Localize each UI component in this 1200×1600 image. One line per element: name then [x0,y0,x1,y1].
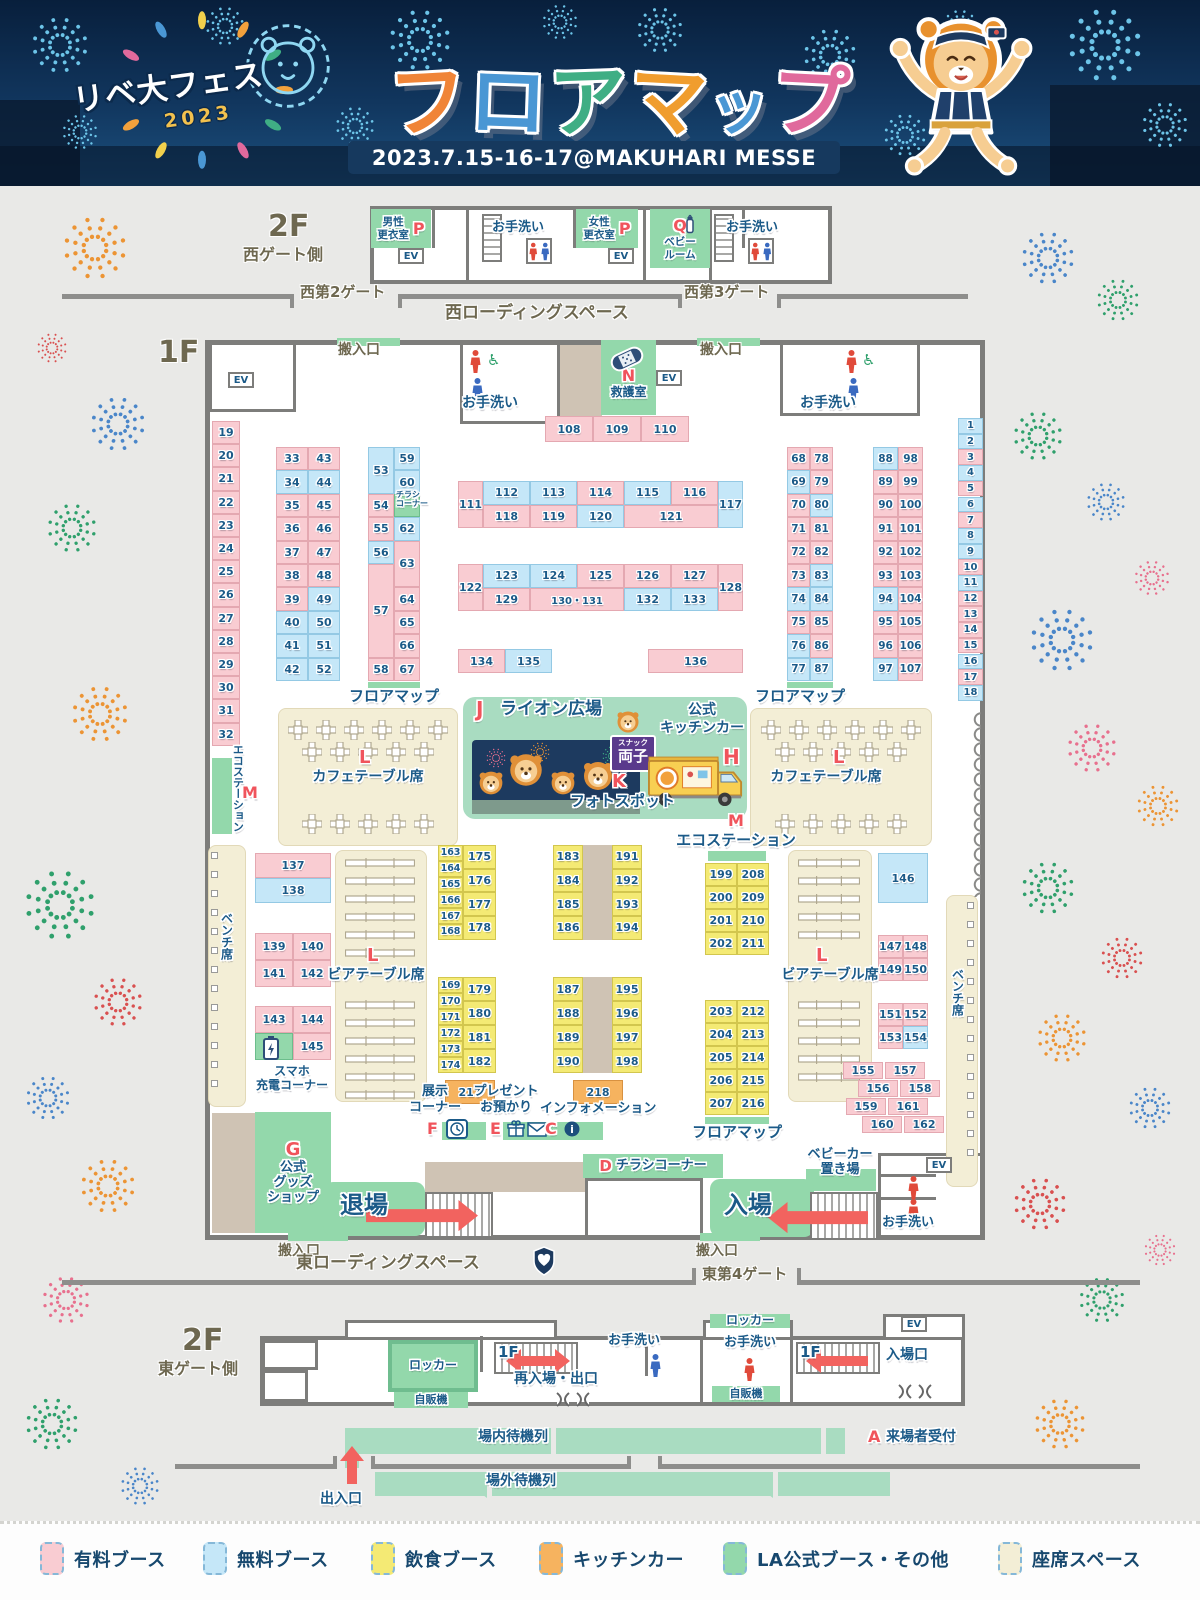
booth-number: 53 [373,464,388,477]
booth-number: 215 [742,1074,765,1087]
booth-38: 38 [276,564,308,587]
booth-216: 216 [737,1092,769,1115]
structure-gate [777,294,781,308]
booth-number: 100 [900,499,922,511]
booth-number: 171 [441,1012,461,1023]
booth-number: 87 [814,663,829,675]
booth-number: 13 [964,609,978,620]
booth-number: 36 [284,522,299,535]
bandage-icon [607,344,647,374]
booth-9: 9 [958,544,983,560]
bench-seat-icon [211,1023,218,1030]
structure-gate [678,294,682,308]
booth-209: 209 [737,886,769,909]
title-character: ア [548,63,629,144]
map-label: L [816,946,827,966]
booth-number: 11 [964,577,978,588]
booth-number: 12 [964,593,978,604]
booth-6: 6 [958,497,983,513]
firework-decoration [118,1464,162,1508]
booth-number: 125 [589,569,612,582]
booth-36: 36 [276,517,308,540]
booth-133: 133 [671,588,718,612]
booth-186: 186 [553,916,583,940]
booth-number: 92 [878,546,893,558]
booth-88: 88 [873,447,898,470]
structure-wallthin [878,1174,936,1177]
booth-number: 31 [218,704,233,717]
booth-211: 211 [737,932,769,955]
legend-item-1: 有料ブース [40,1542,166,1575]
booth-20: 20 [212,444,240,467]
booth-number: 213 [742,1028,765,1041]
booth-number: 124 [542,569,565,582]
booth-215: 215 [737,1069,769,1092]
bench-seat-icon [967,921,974,928]
beer-table-icon [798,858,860,868]
booth-number: 189 [557,1031,580,1044]
booth-69: 69 [787,470,810,493]
booth-number: 56 [373,546,388,559]
structure-wallthin [432,206,435,248]
wheelchair-icon: ♿ [487,351,500,369]
booth-197: 197 [612,1025,642,1049]
structure-gate [398,294,682,299]
booth-number: 197 [616,1031,639,1044]
booth-number: 200 [710,891,733,904]
baby-room-text: ベビー ルーム [664,236,696,260]
vending-machine-west: 自販機 [394,1392,468,1408]
booth-number: 111 [459,498,482,511]
booth-34: 34 [276,470,308,493]
direction-arrow-icon [340,1446,364,1484]
map-label: お手洗い [882,1216,934,1231]
map-label: ベンチ席 [219,912,232,960]
booth-97: 97 [873,658,898,681]
structure-tan [212,1113,255,1233]
booth-170: 170 [438,993,463,1009]
booth-173: 173 [438,1041,463,1057]
booth-128: 128 [718,564,743,611]
booth-number: 75 [791,616,806,628]
elevator-label: EV [608,248,634,264]
booth-number: 107 [900,663,922,675]
booth-171: 171 [438,1009,463,1025]
booth-number: 130・131 [551,592,603,607]
booth-143: 143 [255,1006,293,1033]
firework-decoration [1018,228,1078,288]
booth-number: 51 [316,639,331,652]
booth-number: 141 [263,967,286,980]
booth-162: 162 [904,1116,944,1133]
booth-number: 158 [909,1082,932,1095]
booth-number: 43 [316,452,331,465]
map-label: C [545,1120,557,1138]
booth-number: 26 [218,588,233,601]
booth-91: 91 [873,517,898,540]
booth-number: 202 [710,937,733,950]
cafe-table-icon [761,720,781,740]
map-label: 再入場・出口 [514,1372,598,1388]
booth-number: 65 [399,616,414,629]
first-aid-room-text: 救護室 [610,386,646,400]
booth-70: 70 [787,494,810,517]
map-label: チラシ コーナー [396,491,428,509]
booth-number: 144 [301,1013,324,1026]
beer-table-icon [798,1018,860,1028]
booth-159: 159 [846,1098,886,1115]
firework-decoration [1034,1010,1090,1066]
booth-2: 2 [958,434,983,450]
booth-number: 175 [468,850,491,863]
booth-number: 132 [636,593,659,606]
booth-number: 161 [897,1100,920,1113]
bench-seat-icon [967,1016,974,1023]
map-label: 2F [268,210,309,244]
legend-swatch [539,1542,563,1575]
structure-tan [425,1162,585,1192]
booth-number: 78 [814,453,829,465]
booth-number: 194 [616,921,639,934]
booth-103: 103 [898,564,923,587]
booth-163: 163 [438,845,463,861]
booth-number: 121 [660,510,683,523]
booth-number: 86 [814,640,829,652]
beer-table-icon [798,1036,860,1046]
booth-51: 51 [308,634,340,657]
baby-bottle-icon [684,212,696,234]
booth-number: 177 [468,898,491,911]
booth-48: 48 [308,564,340,587]
structure-gate [662,1464,1140,1469]
cafe-table-icon [775,742,795,762]
cafe-table-icon [330,814,350,834]
map-label: A [868,1428,880,1446]
booth-number: 147 [879,940,902,953]
booth-123: 123 [483,564,530,588]
map-label: 場外待機列 [486,1474,556,1490]
booth-number: 42 [284,663,299,676]
queue-arrow-gap [773,1472,778,1498]
booth-17: 17 [958,669,983,685]
booth-49: 49 [308,587,340,610]
beer-table-icon [345,930,415,940]
bench-seat-icon [211,928,218,935]
booth-number: 160 [871,1118,894,1131]
booth-number: 94 [878,593,893,605]
booth-106: 106 [898,634,923,657]
structure-wall [205,1235,288,1240]
booth-number: 38 [284,569,299,582]
booth-number: 24 [218,542,233,555]
title-character: プ [769,62,851,144]
shutter-wall-decoration [966,712,981,897]
bench-seat-icon [211,1004,218,1011]
booth-139: 139 [255,933,293,960]
female-restroom-icon [470,350,481,373]
booth-number: 119 [542,510,565,523]
cafe-table-icon [901,720,921,740]
booth-136: 136 [648,649,743,673]
booth-number: 190 [557,1055,580,1068]
map-label: お手洗い [708,1336,792,1351]
booth-number: 84 [814,593,829,605]
booth-59: 59 [394,447,420,470]
female-restroom-icon [846,350,857,373]
bench-seat-icon [211,947,218,954]
booth-number: 8 [967,530,974,541]
booth-number: 186 [557,921,580,934]
booth-195: 195 [612,977,642,1001]
booth-number: 127 [683,569,706,582]
booth-number: 187 [557,983,580,996]
booth-190: 190 [553,1049,583,1073]
booth-210: 210 [737,909,769,932]
map-label: エコステーション [666,832,806,849]
booth-number: 207 [710,1097,733,1110]
male-icon [541,242,549,260]
booth-number: 23 [218,519,233,532]
map-label: ビアテーブル席 [318,968,434,984]
firework-decoration [1018,858,1078,918]
booth-125: 125 [577,564,624,588]
structure-gate [797,1280,1140,1285]
beer-table-icon [345,1072,415,1082]
booth-number: 48 [316,569,331,582]
elevator-label: EV [398,248,424,264]
locker-west: ロッカー [388,1340,478,1392]
booth-number: 198 [616,1055,639,1068]
vending-machine-west-text: 自販機 [415,1394,448,1407]
booth-number: 89 [878,476,893,488]
beer-table-icon [798,876,860,886]
booth-number: 22 [218,496,233,509]
map-label: 退場 [340,1192,388,1219]
booth-84: 84 [810,587,833,610]
structure-gate [371,1456,375,1469]
elevator-label: EV [901,1316,927,1332]
booth-71: 71 [787,517,810,540]
vending-machine-east: 自販機 [712,1386,780,1402]
booth-number: 188 [557,1007,580,1020]
firework-decoration [22,1394,82,1454]
wheelchair-icon: ♿ [862,351,875,369]
legend-label: 飲食ブース [405,1546,497,1572]
eco-station-strip-right [708,851,766,861]
map-label: 1F [498,1344,519,1361]
map-label: お手洗い [492,221,544,236]
bench-seat-icon [967,978,974,985]
map-label: スマホ 充電コーナー [240,1064,344,1093]
structure-gate [375,1464,627,1469]
booth-98: 98 [898,447,923,470]
map-label: お手洗い [462,396,518,412]
booth-177: 177 [463,892,496,916]
booth-129: 129 [483,588,530,612]
booth-132: 132 [624,588,671,612]
cafe-table-icon [803,814,823,834]
booth-67: 67 [394,658,420,681]
structure-wallthin [480,1336,483,1372]
booth-89: 89 [873,470,898,493]
bench-seat-icon [967,1035,974,1042]
booth-number: 55 [373,522,388,535]
booth-number: 16 [964,656,978,667]
booth-number: 153 [879,1031,902,1044]
booth-number: 159 [855,1100,878,1113]
bench-seat-icon [967,1054,974,1061]
booth-number: 88 [878,453,893,465]
booth-185: 185 [553,892,583,916]
booth-number: 60 [399,476,414,489]
legend-bar: 有料ブース無料ブース飲食ブースキッチンカーLA公式ブース・その他座席スペース [0,1521,1200,1600]
booth-52: 52 [308,658,340,681]
structure-tan [583,845,612,940]
booth-21: 21 [212,467,240,490]
booth-110: 110 [641,416,689,442]
booth-181: 181 [463,1025,496,1049]
booth-number: 154 [904,1031,927,1044]
bench-seat-icon [211,1061,218,1068]
map-label: 両子 [612,748,654,765]
booth-number: 143 [263,1013,286,1026]
booth-10: 10 [958,559,983,575]
structure-wall [205,340,210,1240]
booth-number: 201 [710,914,733,927]
booth-116: 116 [671,481,718,505]
booth-number: 152 [904,1008,927,1021]
booth-number: 192 [616,874,639,887]
booth-107: 107 [898,658,923,681]
mens-changing-room-text: P [413,219,425,238]
cafe-table-icon [302,814,322,834]
vending-machine-east-text: 自販機 [730,1388,763,1401]
event-logo: リベ大フェス 2023 [68,6,336,180]
booth-number: 73 [791,570,806,582]
firework-decoration [1098,934,1146,982]
booth-202: 202 [705,932,737,955]
booth-212: 212 [737,1000,769,1023]
map-label: 1F [158,336,199,370]
firework-decoration [59,212,131,284]
bench-seat-icon [211,890,218,897]
beer-table-icon [345,912,415,922]
map-label: フロアマップ [744,688,856,705]
booth-number: 96 [878,640,893,652]
booth-42: 42 [276,658,308,681]
cafe-table-icon [414,742,434,762]
cafe-table-icon [831,814,851,834]
booth-176: 176 [463,869,496,893]
booth-15: 15 [958,638,983,654]
booth-number: 151 [879,1008,902,1021]
booth-number: 9 [967,546,974,557]
booth-number: 39 [284,593,299,606]
cafe-table-icon [845,720,865,740]
booth-number: 95 [878,616,893,628]
booth-number: 1 [967,420,974,431]
booth-93: 93 [873,564,898,587]
firework-decoration [1084,480,1128,524]
booth-number: 3 [967,452,974,463]
booth-number: 210 [742,914,765,927]
booth-number: 155 [852,1064,875,1077]
booth-94: 94 [873,587,898,610]
booth-119: 119 [530,505,577,529]
page-title: フロアマップ [338,12,900,142]
firework-decoration [77,1155,139,1217]
map-label: F [427,1120,438,1138]
title-character: フ [387,62,469,144]
booth-number: 203 [710,1005,733,1018]
elevator-label: EV [926,1157,952,1173]
booth-number: 170 [441,996,461,1007]
structure-gate [627,1456,631,1469]
legend-label: 座席スペース [1032,1546,1141,1572]
structure-wallthin [643,206,646,284]
map-label: 1F [800,1344,821,1361]
map-label: 展示 コーナー [402,1084,468,1115]
booth-200: 200 [705,886,737,909]
booth-85: 85 [810,611,833,634]
booth-number: 6 [967,499,974,510]
female-restroom-icon [744,1358,755,1381]
booth-164: 164 [438,861,463,877]
booth-12: 12 [958,591,983,607]
booth-number: 179 [468,983,491,996]
cafe-table-icon [386,742,406,762]
booth-number: 7 [967,515,974,526]
booth-145: 145 [293,1033,331,1060]
booth-number: 79 [814,476,829,488]
booth-114: 114 [577,481,624,505]
booth-56: 56 [368,541,394,564]
booth-206: 206 [705,1069,737,1092]
booth-178: 178 [463,916,496,940]
booth-203: 203 [705,1000,737,1023]
booth-32: 32 [212,723,240,746]
legend-swatch [203,1542,227,1575]
structure-gate [797,1268,801,1285]
booth-number: 112 [495,486,518,499]
door-marks-icon [554,1392,592,1407]
booth-147: 147 [878,935,903,958]
beer-table-icon [345,1054,415,1064]
cafe-table-icon [316,720,336,740]
booth-92: 92 [873,541,898,564]
booth-53: 53 [368,447,394,494]
envelope-icon [527,1122,547,1137]
structure-room [262,1370,308,1402]
bench-seat-icon [211,1042,218,1049]
eco-station-strip-left [212,758,232,834]
booth-3: 3 [958,449,983,465]
booth-number: 14 [964,624,978,635]
firework-decoration [68,682,132,746]
booth-number: 145 [301,1040,324,1053]
booth-number: 99 [903,476,918,488]
booth-number: 58 [373,663,388,676]
map-label: ビアテーブル席 [772,968,888,984]
booth-193: 193 [612,892,642,916]
cafe-table-icon [372,720,392,740]
structure-gate [777,294,968,299]
booth-number: 150 [904,963,927,976]
booth-79: 79 [810,470,833,493]
booth-160: 160 [862,1116,902,1133]
booth-number: 91 [878,523,893,535]
beer-table-icon [345,858,415,868]
